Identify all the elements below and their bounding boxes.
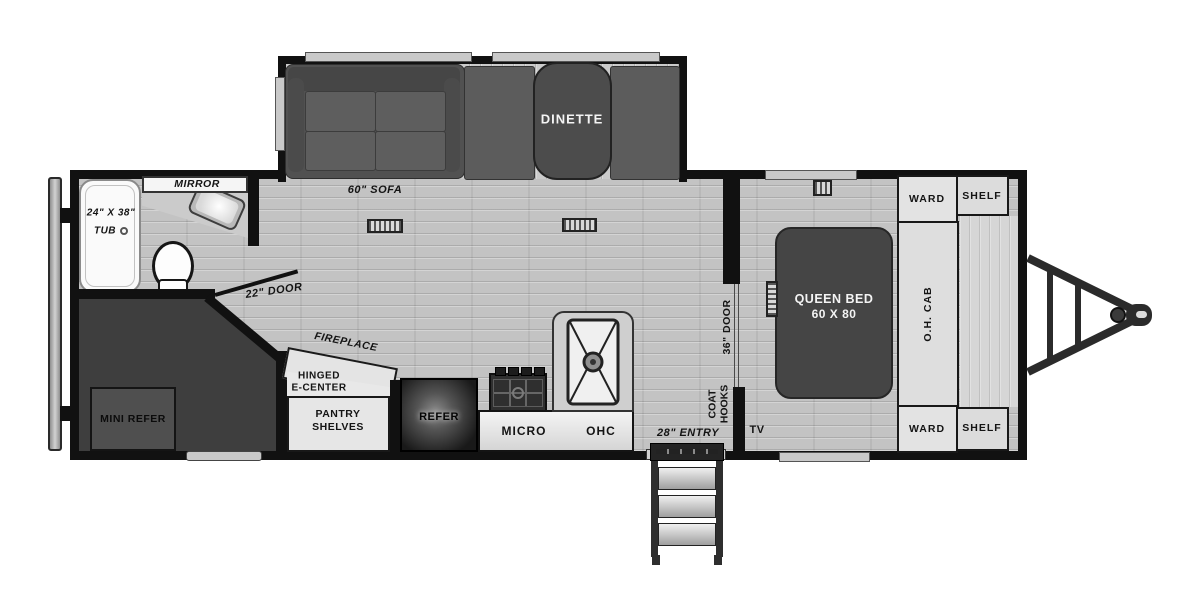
tub-label: TUB	[94, 226, 116, 237]
wall-left	[70, 170, 79, 460]
cooktop-knob	[495, 367, 506, 376]
kitchen-sink	[566, 318, 620, 406]
window-dinette	[492, 52, 660, 62]
mirror-label: MIRROR	[174, 178, 220, 190]
tv-wall	[733, 387, 745, 452]
dinette-bench-right	[610, 66, 680, 180]
ohc-label: OHC	[586, 424, 616, 438]
floor-register	[766, 281, 778, 317]
slideout-wall-right	[679, 56, 687, 182]
shelf-top-label: SHELF	[962, 190, 1001, 202]
micro-label: MICRO	[502, 424, 547, 438]
entry-step	[658, 467, 716, 490]
window-bedroom-top	[765, 170, 857, 180]
step-foot	[714, 555, 722, 565]
sofa-cushion	[375, 91, 446, 132]
window-sofa	[305, 52, 472, 62]
step-foot	[652, 555, 660, 565]
sofa-label: 60" SOFA	[348, 184, 402, 196]
bath-wall-bottom	[70, 289, 215, 299]
step-rail-right	[716, 461, 723, 557]
entry-threshold-ticks	[656, 449, 718, 454]
bed-label-2: 60 X 80	[812, 307, 857, 321]
trailer-hitch	[1026, 246, 1156, 386]
entry-step	[658, 523, 716, 546]
sofa-cushion	[305, 131, 376, 171]
rv-floorplan: DINETTE 60" SOFA MIRROR 24" X 38" TUB 22…	[0, 0, 1200, 600]
entry-label: 28" ENTRY	[657, 427, 719, 439]
wall-vent	[813, 180, 832, 196]
tub-size-label: 24" X 38"	[87, 208, 135, 219]
floor-register	[367, 219, 403, 233]
window-bedroom-bottom	[779, 452, 870, 462]
coat-hooks-line1: COAT	[707, 385, 719, 424]
bedroom-door-label: 36" DOOR	[721, 299, 733, 354]
window-slide-side	[275, 77, 285, 151]
hinged-label-2: E-CENTER	[291, 383, 346, 394]
coat-hooks-label: COAT HOOKS	[707, 385, 730, 424]
baggage-door	[186, 451, 262, 461]
cooktop-knob	[534, 367, 545, 376]
entry-step	[658, 495, 716, 518]
refer-label: REFER	[419, 411, 459, 423]
dinette-bench-left	[464, 66, 535, 180]
pantry-label-1: PANTRY	[316, 408, 361, 420]
dinette-label: DINETTE	[541, 112, 604, 127]
ward-top-label: WARD	[909, 193, 945, 205]
sofa-cushion	[375, 131, 446, 171]
cooktop-knob	[521, 367, 532, 376]
oh-cab-label: O.H. CAB	[922, 286, 934, 341]
sofa-arm-right	[444, 78, 460, 172]
ward-bottom-label: WARD	[909, 423, 945, 435]
mini-refer-label: MINI REFER	[100, 413, 166, 425]
bed-label-1: QUEEN BED	[795, 292, 874, 306]
sofa-arm-left	[288, 78, 304, 172]
cooktop-burner	[512, 387, 524, 399]
tv-label: TV	[749, 424, 764, 436]
coat-hooks-line2: HOOKS	[719, 385, 731, 424]
floor-register	[562, 218, 597, 232]
sofa-cushion	[305, 91, 376, 132]
bath-wall-right	[248, 174, 259, 246]
bedroom-partition-wall	[723, 178, 740, 284]
bed-platform	[960, 216, 1018, 407]
step-rail-left	[651, 461, 658, 557]
tub-drain	[120, 227, 128, 235]
sofa-back	[288, 67, 460, 91]
shelf-bottom-label: SHELF	[962, 422, 1001, 434]
pantry-label-2: SHELVES	[312, 421, 364, 433]
bedroom-door-track	[734, 284, 739, 387]
hinged-label-1: HINGED	[298, 371, 340, 382]
cooktop-knob	[508, 367, 519, 376]
